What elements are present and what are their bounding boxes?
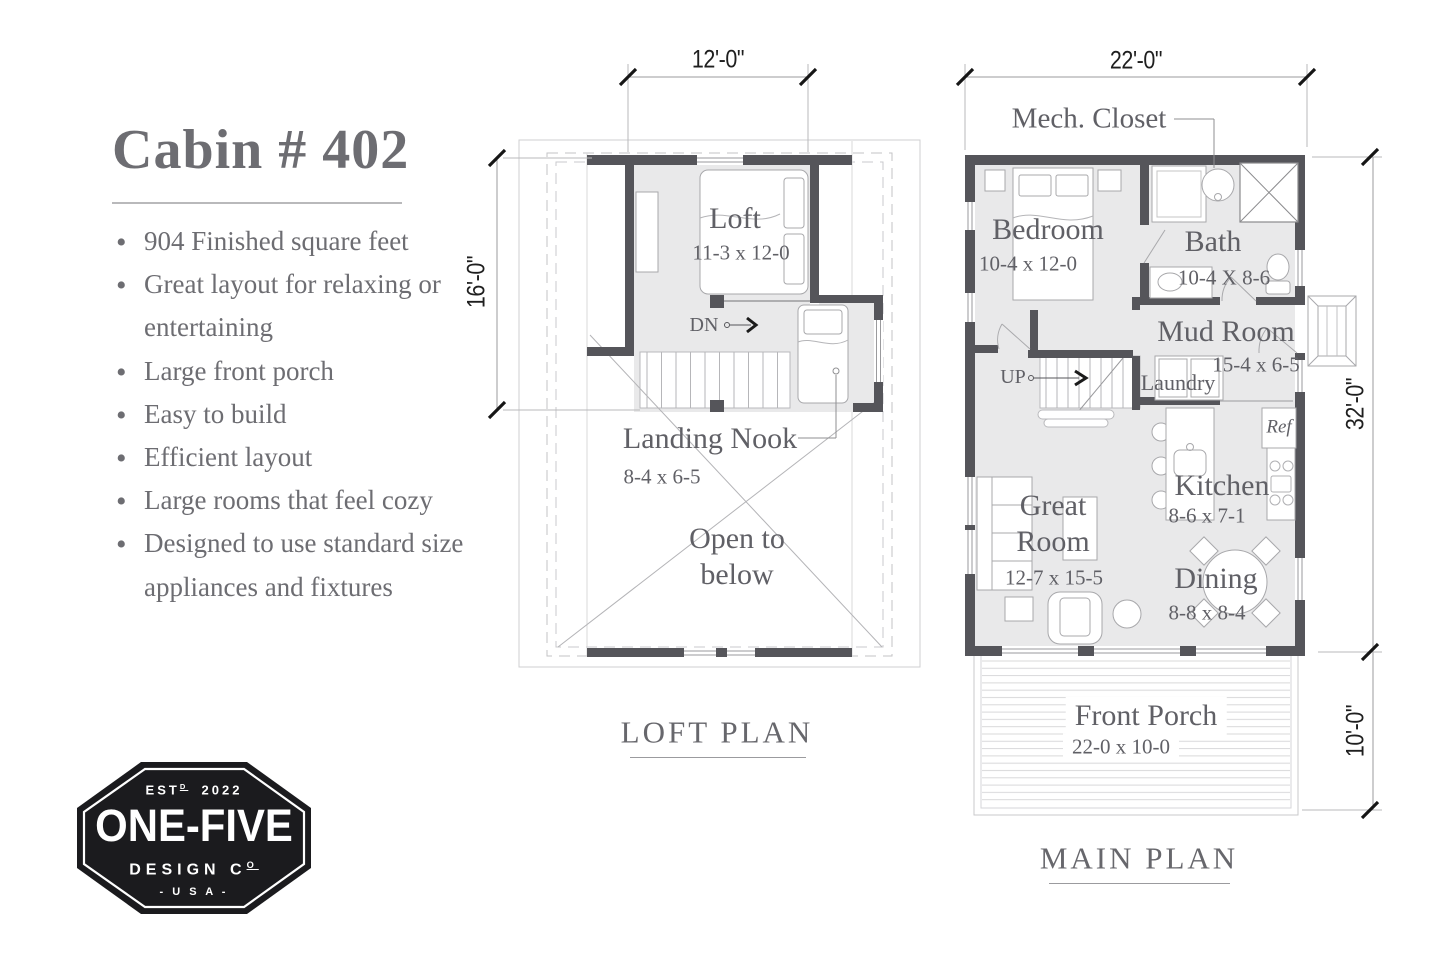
- logo-est-line: ESTD 2022: [75, 782, 313, 797]
- feature-item: Great layout for relaxing or entertainin…: [112, 263, 484, 349]
- mud-room-label: Mud Room: [1157, 314, 1295, 350]
- dining-size: 8-8 x 8-4: [1169, 600, 1246, 625]
- company-logo: ESTD 2022 ONE-FIVE DESIGN CO - U S A -: [75, 760, 313, 916]
- bedroom-label: Bedroom: [992, 212, 1104, 248]
- great-room-size: 12-7 x 15-5: [1005, 565, 1103, 590]
- logo-usa-line: - U S A -: [75, 886, 313, 898]
- landing-nook-daybed: [798, 305, 848, 403]
- kitchen-size: 8-6 x 7-1: [1169, 503, 1246, 528]
- laundry-label: Laundry: [1141, 370, 1216, 396]
- main-plan-title: MAIN PLAN: [1040, 839, 1238, 876]
- dining-label: Dining: [1174, 561, 1257, 597]
- bath-size: 10-4 X 8-6: [1178, 265, 1270, 290]
- page-title: Cabin # 402: [112, 118, 484, 182]
- back-steps: [1308, 296, 1356, 366]
- mud-room-size: 15-4 x 6-5: [1212, 352, 1300, 377]
- loft-room-label: Loft: [709, 201, 761, 237]
- open-to-below-label: Open to below: [657, 521, 817, 593]
- logo-company-name: ONE-FIVE: [83, 800, 304, 852]
- main-width-dimension: 22'-0": [1110, 47, 1162, 76]
- feature-item: Efficient layout: [112, 436, 484, 479]
- loft-room-size: 11-3 x 12-0: [692, 240, 789, 265]
- floor-plan-sheet: Cabin # 402 904 Finished square feet Gre…: [0, 0, 1445, 964]
- bedroom-size: 10-4 x 12-0: [979, 251, 1077, 276]
- feature-item: Easy to build: [112, 393, 484, 436]
- landing-nook-label: Landing Nook: [623, 421, 797, 457]
- landing-nook-size: 8-4 x 6-5: [624, 464, 701, 489]
- feature-item: Large rooms that feel cozy: [112, 479, 484, 522]
- feature-list: 904 Finished square feet Great layout fo…: [112, 220, 484, 609]
- loft-title-underline: [630, 757, 806, 758]
- great-room-label: Great Room: [998, 488, 1108, 560]
- title-divider: [112, 202, 402, 204]
- bath-label: Bath: [1185, 224, 1242, 260]
- info-panel: Cabin # 402 904 Finished square feet Gre…: [112, 118, 484, 609]
- kitchen-label: Kitchen: [1175, 468, 1270, 504]
- front-porch-label: Front Porch: [1066, 697, 1227, 735]
- feature-item: Designed to use standard size appliances…: [112, 522, 484, 608]
- main-title-underline: [1049, 883, 1230, 884]
- loft-dresser: [636, 192, 658, 272]
- loft-plan-title: LOFT PLAN: [621, 713, 814, 750]
- feature-item: 904 Finished square feet: [112, 220, 484, 263]
- feature-item: Large front porch: [112, 350, 484, 393]
- loft-height-dimension: 16'-0": [463, 256, 492, 308]
- logo-design-line: DESIGN CO: [75, 860, 313, 879]
- loft-width-dimension: 12'-0": [692, 46, 744, 75]
- dn-label: DN: [690, 313, 719, 337]
- porch-depth-dimension: 10'-0": [1342, 705, 1371, 757]
- up-label: UP: [1000, 365, 1026, 389]
- ref-label: Ref: [1266, 417, 1291, 440]
- mech-closet-label: Mech. Closet: [1012, 102, 1167, 137]
- front-porch-size: 22-0 x 10-0: [1063, 733, 1179, 760]
- main-height-dimension: 32'-0": [1342, 378, 1371, 430]
